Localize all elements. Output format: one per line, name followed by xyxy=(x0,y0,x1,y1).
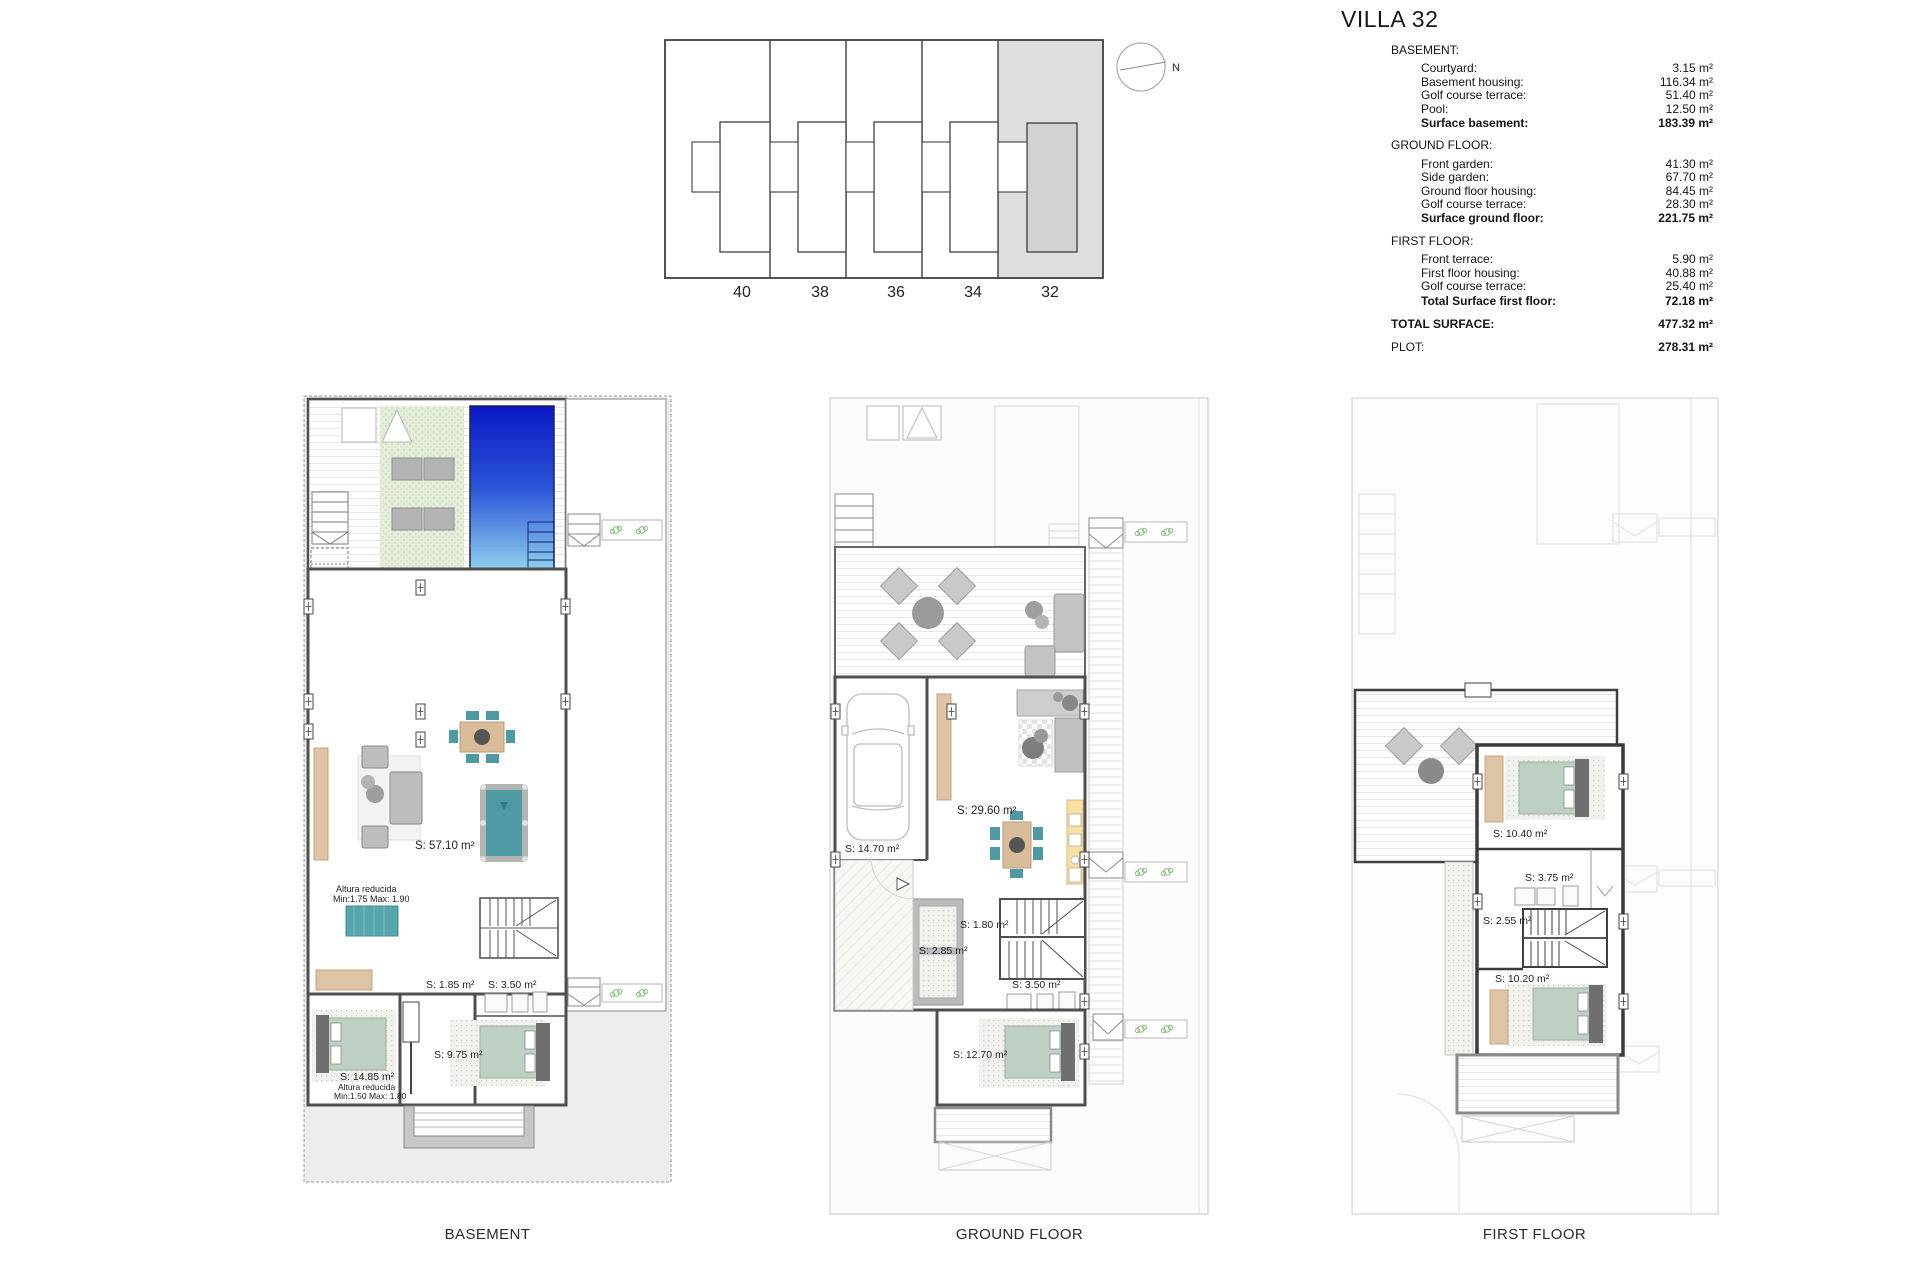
total-surface-row: TOTAL SURFACE:477.32 m² xyxy=(1391,318,1713,331)
bedroom-area-label: S: 12.70 m² xyxy=(953,1049,1008,1061)
side-lightwell xyxy=(1445,862,1473,1055)
living-kitchen-area-label: S: 29.60 m² xyxy=(957,805,1017,817)
table-row: Front garden:41.30 m² xyxy=(1391,158,1713,171)
pool-table xyxy=(480,784,528,862)
site-key-plan: 40 38 36 34 32 N xyxy=(660,35,1220,310)
first-floor-caption: FIRST FLOOR xyxy=(1347,1226,1722,1243)
storage-area-label: S: 1.85 m² xyxy=(426,979,475,991)
ground-floor-plan: S: 14.70 m² S: 29.60 m² S: 1.80 m² S: 2.… xyxy=(827,394,1212,1219)
site-unit-number: 34 xyxy=(964,284,982,301)
lightwell-steps xyxy=(404,1106,534,1148)
bathroom-fixtures xyxy=(485,992,547,1012)
page-title: VILLA 32 xyxy=(1341,6,1438,33)
table-row: First floor housing:40.88 m² xyxy=(1391,267,1713,280)
pool xyxy=(470,406,554,570)
table-row: Golf course terrace:25.40 m² xyxy=(1391,280,1713,293)
table-total-row: Surface basement:183.39 m² xyxy=(1391,117,1713,130)
bedroom1-area-label: S: 10.40 m² xyxy=(1493,828,1548,840)
table-row: Golf course terrace:51.40 m² xyxy=(1391,89,1713,102)
table-row: Front terrace:5.90 m² xyxy=(1391,253,1713,266)
bedroom-1 xyxy=(1485,756,1605,822)
north-label: N xyxy=(1172,62,1180,74)
plot-row: PLOT:278.31 m² xyxy=(1391,341,1713,354)
table-row: Ground floor housing:84.45 m² xyxy=(1391,185,1713,198)
table-row: Golf course terrace:28.30 m² xyxy=(1391,198,1713,211)
basement-caption: BASEMENT xyxy=(300,1226,675,1243)
garage-area-label: S: 14.70 m² xyxy=(845,843,900,855)
site-unit-number: 32 xyxy=(1041,284,1059,301)
site-unit-number: 38 xyxy=(811,284,829,301)
table-total-row: Total Surface first floor:72.18 m² xyxy=(1391,295,1713,308)
stairs-icon xyxy=(1000,899,1085,979)
sofa-set xyxy=(358,746,422,848)
bathroom-area-label: S: 3.50 m² xyxy=(1012,979,1061,991)
bed xyxy=(316,1015,386,1073)
planter xyxy=(342,408,376,442)
site-unit-number: 36 xyxy=(887,284,905,301)
bedroom2-area-label: S: 10.20 m² xyxy=(1495,973,1550,985)
reduced-height-note: Min:1.50 Max: 1.80 xyxy=(334,1091,407,1101)
section-heading: GROUND FLOOR: xyxy=(1391,139,1713,152)
reduced-height-note: Min:1.75 Max: 1.90 xyxy=(333,894,410,904)
table-row: Basement housing:116.34 m² xyxy=(1391,76,1713,89)
stairs-icon xyxy=(480,898,558,958)
car xyxy=(842,694,914,840)
hallway-area-label: S: 2.85 m² xyxy=(919,945,968,957)
landing-area-label: S: 2.55 m² xyxy=(1483,915,1532,927)
table-row: Side garden:67.70 m² xyxy=(1391,171,1713,184)
site-unit-number: 40 xyxy=(733,284,751,301)
bathroom-area-label: S: 3.50 m² xyxy=(488,979,537,991)
table-section-ground-floor: GROUND FLOOR: Front garden:41.30 m² Side… xyxy=(1391,139,1713,225)
pantry-area-label: S: 1.80 m² xyxy=(960,919,1009,931)
north-compass-icon: N xyxy=(1117,43,1180,91)
bathroom-area-label: S: 3.75 m² xyxy=(1525,872,1574,884)
reduced-height-note: Altura reducida xyxy=(336,884,397,894)
basement-living-area-label: S: 57.10 m² xyxy=(415,840,475,852)
section-heading: FIRST FLOOR: xyxy=(1391,235,1713,248)
garden-planters xyxy=(867,406,941,440)
plan-sheet: VILLA 32 BASEMENT: Courtyard:3.15 m² Bas… xyxy=(0,0,1920,1280)
section-heading: BASEMENT: xyxy=(1391,44,1713,57)
basement-plan: S: 57.10 m² Altura reducida Min:1.75 Max… xyxy=(300,394,675,1214)
bedroom-2 xyxy=(1490,984,1607,1046)
bed xyxy=(480,1023,550,1081)
sideboard xyxy=(314,748,328,860)
closet xyxy=(316,970,372,990)
table-total-row: Surface ground floor:221.75 m² xyxy=(1391,212,1713,225)
hallway-area-label: S: 9.75 m² xyxy=(434,1049,483,1061)
stairs-icon xyxy=(1523,909,1607,967)
table-row: Pool:12.50 m² xyxy=(1391,103,1713,116)
table-section-first-floor: FIRST FLOOR: Front terrace:5.90 m² First… xyxy=(1391,235,1713,308)
surface-table: BASEMENT: Courtyard:3.15 m² Basement hou… xyxy=(1391,44,1713,355)
ground-floor-caption: GROUND FLOOR xyxy=(827,1226,1212,1243)
golf-course-terrace xyxy=(566,399,666,1011)
table-row: Courtyard:3.15 m² xyxy=(1391,62,1713,75)
first-floor-plan: S: 10.40 m² S: 3.75 m² S: 2.55 m² S: 10.… xyxy=(1347,394,1722,1219)
terrace-notch xyxy=(1465,683,1491,697)
table-section-basement: BASEMENT: Courtyard:3.15 m² Basement hou… xyxy=(1391,44,1713,130)
